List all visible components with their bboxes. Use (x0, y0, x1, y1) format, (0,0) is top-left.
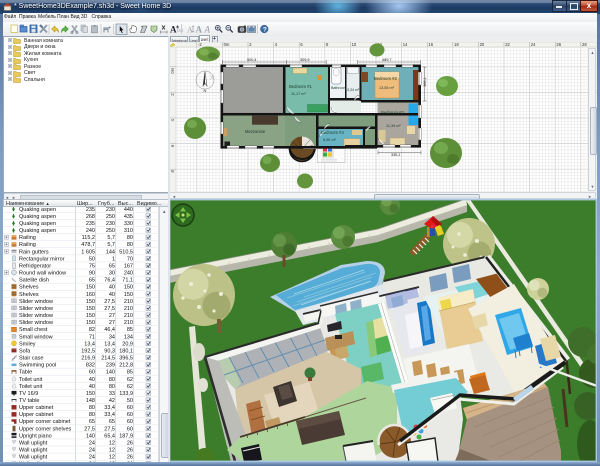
svg-text:60: 60 (89, 370, 95, 376)
svg-text:80: 80 (89, 405, 95, 411)
svg-text:N: N (204, 88, 207, 93)
svg-text:27: 27 (109, 320, 115, 326)
svg-text:TV table: TV table (19, 398, 39, 404)
svg-text:150: 150 (86, 320, 95, 326)
svg-text:440: 440 (124, 207, 133, 213)
svg-text:192,5: 192,5 (81, 348, 95, 354)
svg-text:396,5: 396,5 (119, 356, 133, 362)
svg-text:150: 150 (86, 391, 95, 397)
svg-text:27,5: 27,5 (104, 299, 115, 305)
svg-text:133,9: 133,9 (119, 391, 133, 397)
svg-text:Slider window: Slider window (19, 299, 53, 305)
svg-text:14: 14 (403, 42, 408, 47)
svg-text:832: 832 (86, 363, 95, 369)
svg-text:Stair case: Stair case (19, 356, 43, 362)
svg-text:250: 250 (106, 228, 115, 234)
svg-text:TV 16/9: TV 16/9 (19, 391, 38, 397)
svg-text:10: 10 (352, 42, 357, 47)
svg-text:16: 16 (428, 42, 433, 47)
svg-text:11,39 m²: 11,39 m² (386, 124, 401, 128)
svg-text:210: 210 (124, 313, 133, 319)
svg-text:24: 24 (531, 42, 536, 47)
svg-text:46,4: 46,4 (104, 327, 115, 333)
svg-text:90,3: 90,3 (104, 348, 115, 354)
svg-text:240: 240 (124, 271, 133, 277)
svg-text:24: 24 (89, 455, 95, 461)
svg-text:80: 80 (109, 384, 115, 390)
svg-text:80: 80 (109, 377, 115, 383)
svg-text:28: 28 (582, 42, 587, 47)
svg-text:Upper cabinet: Upper cabinet (19, 405, 54, 411)
svg-text:62: 62 (127, 377, 133, 383)
svg-text:26: 26 (127, 448, 133, 454)
svg-text:65: 65 (89, 419, 95, 425)
svg-text:Quaking aspen: Quaking aspen (19, 221, 56, 227)
svg-text:Upper corner shelves: Upper corner shelves (19, 426, 72, 432)
svg-text:150: 150 (86, 306, 95, 312)
svg-text:216,9: 216,9 (81, 356, 95, 362)
svg-text:30: 30 (109, 271, 115, 277)
svg-text:60: 60 (127, 412, 133, 418)
svg-text:230: 230 (106, 221, 115, 227)
svg-text:210: 210 (124, 320, 133, 326)
svg-text:?: ? (263, 27, 267, 34)
svg-text:210: 210 (124, 306, 133, 312)
svg-text:310: 310 (124, 228, 133, 234)
svg-text:26: 26 (127, 440, 133, 446)
svg-text:Satelite dish: Satelite dish (19, 278, 49, 284)
svg-text:140: 140 (106, 370, 115, 376)
svg-text:26: 26 (127, 455, 133, 461)
svg-text:Small window: Small window (19, 334, 53, 340)
svg-text:187,9: 187,9 (119, 433, 133, 439)
svg-text:8,96 m²: 8,96 m² (323, 138, 337, 142)
svg-text:24: 24 (89, 440, 95, 446)
svg-text:71,1: 71,1 (122, 278, 133, 284)
svg-text:239: 239 (106, 363, 115, 369)
svg-text:160: 160 (86, 292, 95, 298)
svg-text:11,17 m²: 11,17 m² (291, 92, 306, 96)
svg-text:386,1: 386,1 (423, 77, 427, 87)
svg-text:235: 235 (86, 207, 95, 213)
svg-text:5,7: 5,7 (107, 235, 115, 241)
svg-text:Wall uplight: Wall uplight (19, 440, 48, 446)
svg-text:62: 62 (127, 384, 133, 390)
svg-text:Quaking aspen: Quaking aspen (19, 228, 56, 234)
svg-text:Rain gutters: Rain gutters (19, 249, 49, 255)
svg-text:26: 26 (556, 42, 561, 47)
svg-text:60: 60 (127, 419, 133, 425)
svg-text:20,9: 20,9 (122, 341, 133, 347)
svg-text:150: 150 (124, 285, 133, 291)
svg-text:Railing: Railing (19, 235, 36, 241)
svg-text:167: 167 (124, 263, 133, 269)
svg-text:27,5: 27,5 (104, 426, 115, 432)
svg-text:Shelves: Shelves (19, 292, 39, 298)
svg-text:489,7: 489,7 (382, 58, 392, 62)
svg-text:Bathroom: Bathroom (331, 86, 347, 90)
svg-text:Toilet unit: Toilet unit (19, 384, 43, 390)
svg-text:150: 150 (86, 313, 95, 319)
svg-text:0m: 0m (170, 67, 175, 73)
svg-text:50: 50 (89, 256, 95, 262)
svg-text:5,7: 5,7 (107, 242, 115, 248)
svg-text:1: 1 (112, 256, 115, 262)
svg-text:ba: ba (177, 26, 185, 34)
svg-text:A: A (196, 25, 203, 35)
svg-text:75: 75 (89, 263, 95, 269)
svg-text:510,5: 510,5 (119, 249, 133, 255)
svg-text:33,4: 33,4 (104, 405, 115, 411)
svg-text:Quaking aspen: Quaking aspen (19, 207, 56, 213)
svg-text:Upper cabinet: Upper cabinet (19, 412, 54, 418)
svg-text:140: 140 (86, 433, 95, 439)
svg-text:12: 12 (109, 440, 115, 446)
svg-text:Table: Table (19, 370, 32, 376)
svg-text:Bedroom #2: Bedroom #2 (374, 76, 397, 81)
svg-text:148: 148 (86, 398, 95, 404)
svg-text:40: 40 (89, 377, 95, 383)
svg-text:12: 12 (109, 448, 115, 454)
svg-text:Upper corner cabinet: Upper corner cabinet (19, 419, 71, 425)
svg-text:330: 330 (124, 221, 133, 227)
svg-text:210: 210 (124, 299, 133, 305)
svg-text:230: 230 (106, 207, 115, 213)
svg-text:335,1: 335,1 (391, 153, 401, 157)
svg-text:Mezzanine: Mezzanine (245, 129, 266, 134)
svg-text:Bedroom #1: Bedroom #1 (289, 84, 312, 89)
svg-text:214,5: 214,5 (101, 356, 115, 362)
svg-text:Slider window: Slider window (19, 306, 53, 312)
svg-text:150: 150 (124, 292, 133, 298)
svg-text:80: 80 (89, 412, 95, 418)
svg-text:309,9: 309,9 (300, 58, 310, 62)
svg-text:50: 50 (127, 398, 133, 404)
svg-text:60: 60 (127, 426, 133, 432)
svg-text:65: 65 (109, 263, 115, 269)
svg-text:65: 65 (109, 419, 115, 425)
svg-text:212,8: 212,8 (119, 363, 133, 369)
svg-text:134: 134 (124, 334, 133, 340)
svg-text:235: 235 (86, 221, 95, 227)
svg-text:76,4: 76,4 (104, 278, 115, 284)
svg-text:70: 70 (127, 256, 133, 262)
svg-text:250: 250 (106, 214, 115, 220)
svg-text:42: 42 (109, 398, 115, 404)
svg-text:Refridgerator: Refridgerator (19, 263, 51, 269)
svg-text:Small chest: Small chest (19, 327, 48, 333)
svg-text:478,7: 478,7 (81, 242, 95, 248)
svg-text:33,4: 33,4 (104, 412, 115, 418)
svg-text:65,4: 65,4 (104, 433, 115, 439)
svg-text:A: A (204, 25, 211, 35)
svg-text:Rectangular mirror: Rectangular mirror (19, 256, 65, 262)
svg-text:435: 435 (124, 214, 133, 220)
svg-text:Shelves: Shelves (19, 285, 39, 291)
svg-text:Swimming pool: Swimming pool (19, 363, 56, 369)
svg-text:500,4: 500,4 (247, 58, 257, 62)
svg-text:Wall uplight: Wall uplight (19, 448, 48, 454)
svg-text:40: 40 (89, 384, 95, 390)
svg-text:Smiley: Smiley (19, 341, 36, 347)
svg-text:90: 90 (89, 271, 95, 277)
svg-text:Upright piano: Upright piano (19, 433, 52, 439)
svg-text:24: 24 (89, 448, 95, 454)
svg-text:82: 82 (89, 327, 95, 333)
svg-text:Railing: Railing (19, 242, 36, 248)
svg-text:18: 18 (454, 42, 459, 47)
svg-text:85: 85 (127, 370, 133, 376)
svg-text:0m: 0m (224, 42, 230, 47)
svg-text:13,4: 13,4 (84, 341, 95, 347)
svg-text:13,4: 13,4 (104, 341, 115, 347)
svg-text:27: 27 (109, 313, 115, 319)
svg-text:27,5: 27,5 (104, 306, 115, 312)
svg-text:3,34 m²: 3,34 m² (347, 88, 360, 92)
svg-text:22: 22 (505, 42, 510, 47)
svg-text:Slider window: Slider window (19, 320, 53, 326)
svg-text:Slider window: Slider window (19, 313, 53, 319)
svg-text:Toilet unit: Toilet unit (19, 377, 43, 383)
svg-text:1 605: 1 605 (81, 249, 95, 255)
svg-text:Round wall window: Round wall window (19, 271, 66, 277)
svg-text:80: 80 (127, 235, 133, 241)
svg-text:85: 85 (127, 327, 133, 333)
svg-text:Sofa: Sofa (19, 348, 31, 354)
svg-text:71: 71 (89, 334, 95, 340)
svg-text:33: 33 (109, 391, 115, 397)
svg-text:Wall uplight: Wall uplight (19, 455, 48, 461)
svg-text:Bedroom #3: Bedroom #3 (381, 110, 404, 115)
svg-text:60: 60 (127, 405, 133, 411)
svg-text:40: 40 (109, 285, 115, 291)
svg-text:240: 240 (86, 228, 95, 234)
svg-text:65: 65 (89, 278, 95, 284)
svg-text:268: 268 (86, 214, 95, 220)
svg-text:150: 150 (86, 285, 95, 291)
svg-text:20: 20 (480, 42, 485, 47)
svg-text:80: 80 (127, 242, 133, 248)
svg-text:12: 12 (109, 455, 115, 461)
svg-text:Quaking aspen: Quaking aspen (19, 214, 56, 220)
svg-text:180,1: 180,1 (119, 348, 133, 354)
svg-text:13,58 m²: 13,58 m² (379, 86, 395, 90)
svg-text:115,2: 115,2 (82, 235, 95, 241)
svg-text:144: 144 (106, 249, 115, 255)
svg-text:34: 34 (109, 334, 115, 340)
svg-text:150: 150 (86, 299, 95, 305)
svg-text:40: 40 (109, 292, 115, 298)
svg-text:27,5: 27,5 (84, 426, 95, 432)
svg-text:Bedroom #4: Bedroom #4 (321, 130, 344, 135)
